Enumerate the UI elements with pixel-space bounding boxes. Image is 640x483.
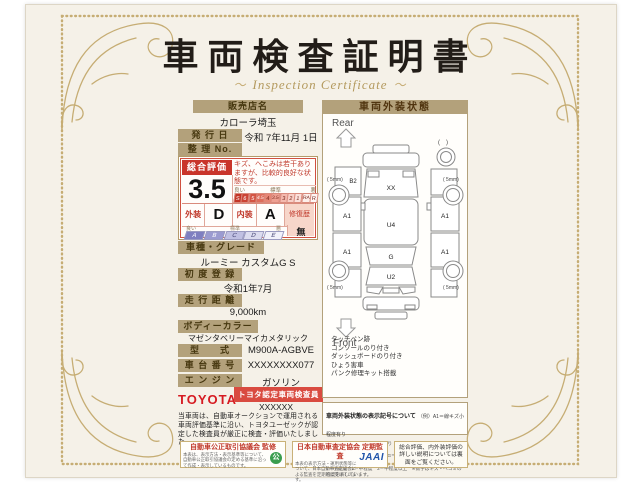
repair-history-label: 修復歴 [285,204,314,226]
windshield-mark: G [388,254,393,261]
condition-note: ダッシュボードのり付き [331,353,463,362]
condition-note: パンク修理キット搭載 [331,370,463,379]
grade-scale: 良い 標準 悪 A B C D E [182,225,288,236]
subtitle-text: Inspection Certificate [252,77,387,92]
score-scale: 良い 標準 悪 S 6 5 4.5 4 3.5 3 2 1 RA R [234,186,317,203]
repair-history-value: 無 [288,225,314,236]
body-color-label: ボディーカラー [178,320,258,333]
jaai-box: 日本自動車査定協会 定期監査 本表の表示方法・運用状態等について、日本自動車査定… [292,441,388,468]
overall-evaluation-box: 総合評価 3.5 キズ、へこみは若干ありますが、比較的良好な状態です。 良い 標… [178,156,318,240]
reverse-side-note: 総合評価、内外装評価の詳しい説明については裏面をご覧ください。 [394,441,468,468]
grade-cell: E [263,231,285,240]
exterior-panel-title: 車両外装状態 [323,101,467,114]
mileage-label: 走 行 距 離 [178,294,242,307]
model-code-label: 型 式 [178,344,242,357]
front-left-tread: ( 5mm) [327,285,343,291]
grade-cell: C [223,231,245,240]
mileage-value: 9,000km [178,307,318,318]
page-subtitle: ～Inspection Certificate～ [120,76,520,93]
car-damage-diagram: Rear ( ) XX U4 G U2 [325,115,467,347]
first-registration-value: 令和1年7月 [178,281,318,295]
grade-cell: D [243,231,265,240]
subtitle-flourish-left: ～ [233,78,246,92]
left-rear-door-mark: A1 [343,213,351,220]
exterior-label: 外装 [182,204,205,226]
toyota-logo: TOYOTA [178,392,237,407]
page-title: 車両検査証明書 [120,28,520,80]
roof-mark: U4 [387,222,396,229]
fair-trade-council-logo: 公 [270,452,282,464]
issue-date-value: 令和 7年11月 1日 [244,130,318,144]
scale-cell: R [309,193,318,203]
hood-mark: U2 [387,274,396,281]
grade-cell: B [203,231,225,240]
spare-tire-label: ( ) [438,140,448,146]
condition-note: タッチペン跡 [331,336,463,345]
dealer-name: カローラ埼玉 [178,115,318,129]
body-color-value: マゼンタベリーマイカメタリック [178,333,318,344]
exterior-condition-panel: 車両外装状態 Rear ( ) XX U4 G U2 [322,100,468,398]
engine-label: エ ン ジ ン [178,374,242,387]
left-quarter-mark: B2 [349,179,357,185]
fair-trade-council-box: 自動車公正取引協議会 監修 本表は、表示方法・表示基準等について、自動車公正取引… [180,441,286,468]
interior-grade: A [257,204,285,226]
subtitle-flourish-right: ～ [394,78,407,92]
symbol-legend-box: 車両外装状態の表示記号について（例）A1＝線キズ小程度有り A＝線キズ有り U＝… [322,402,468,435]
chassis-no-label: 車 台 番 号 [178,359,242,372]
issue-date-label: 発 行 日 [178,129,242,142]
overall-evaluation-score: 3.5 [182,175,233,204]
rear-left-tread: ( 5mm) [327,177,343,183]
model-grade-label: 車種・グレード [178,241,264,254]
first-registration-label: 初 度 登 録 [178,268,242,281]
rear-right-tread: ( 5mm) [443,177,459,183]
right-front-door-mark: A1 [441,249,449,256]
evaluation-comment: キズ、へこみは若干ありますが、比較的良好な状態です。 [234,161,316,186]
certified-inspector-badge: トヨタ認定車両検査員 [234,387,323,402]
overall-evaluation-label: 総合評価 [182,160,232,175]
inspector-number: XXXXXX [234,402,318,412]
right-rear-door-mark: A1 [441,213,449,220]
model-grade-value: ルーミー カスタムG S [178,255,318,269]
condition-note: コンソールのり付き [331,345,463,354]
hatch-mark: XX [387,185,396,192]
legend-title: 車両外装状態の表示記号について [326,414,416,420]
jaai-logo: JAAI [359,452,384,463]
fair-trade-council-body: 本表は、表示方法・表示基準等について、自動車公正取引協議会の定める基準に沿って作… [183,452,269,468]
left-front-door-mark: A1 [343,249,351,256]
interior-label: 内装 [233,204,256,226]
jaai-body: 本表の表示方法・運用状態等について、日本自動車査定協会による監査を定期的に受けて… [295,461,359,483]
fair-trade-council-title: 自動車公正取引協議会 監修 [183,443,283,452]
dealer-label-bar: 販売店名 [193,100,303,113]
ref-no-label: 整 理 No. [178,143,242,156]
condition-notes: タッチペン跡 コンソールのり付き ダッシュボードのり付き ひょう害車 パンク修理… [331,336,463,379]
rear-label: Rear [332,118,354,129]
exterior-grade: D [205,204,233,226]
front-right-tread: ( 5mm) [443,285,459,291]
grade-cell: A [184,231,206,240]
model-code-value: M900A-AGBVE [244,345,318,356]
chassis-no-value: XXXXXXXX077 [244,360,318,371]
